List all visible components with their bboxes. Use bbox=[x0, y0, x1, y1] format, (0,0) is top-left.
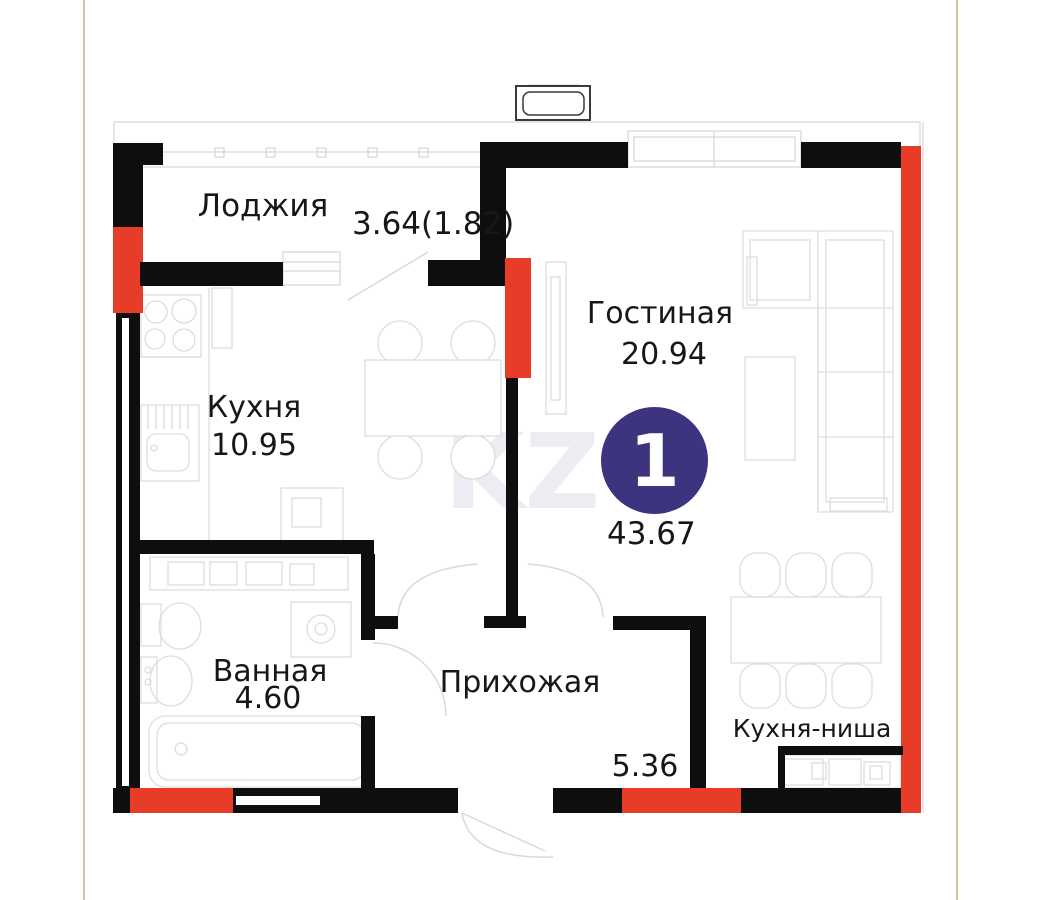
room-label-living: Гостиная bbox=[587, 299, 733, 329]
room-area-loggia: 3.64(1.82) bbox=[352, 209, 514, 240]
room-label-kitchen: Кухня bbox=[207, 393, 301, 423]
room-area-living: 20.94 bbox=[621, 340, 707, 370]
ac-unit bbox=[516, 85, 590, 120]
floor-plan-drawing: KZ bbox=[0, 0, 1042, 900]
room-label-loggia: Лоджия bbox=[198, 191, 328, 222]
room-area-hallway: 5.36 bbox=[612, 752, 679, 782]
floor-plan-page: KZ bbox=[0, 0, 1042, 900]
total-area-value: 43.67 bbox=[607, 519, 696, 550]
room-label-hallway: Прихожая bbox=[440, 668, 601, 698]
room-count-value: 1 bbox=[629, 419, 679, 503]
room-count-badge: 1 bbox=[601, 407, 708, 514]
room-label-kitchen-niche: Кухня-ниша bbox=[733, 716, 892, 741]
room-area-bathroom: 4.60 bbox=[235, 684, 302, 714]
room-area-kitchen: 10.95 bbox=[211, 431, 297, 461]
